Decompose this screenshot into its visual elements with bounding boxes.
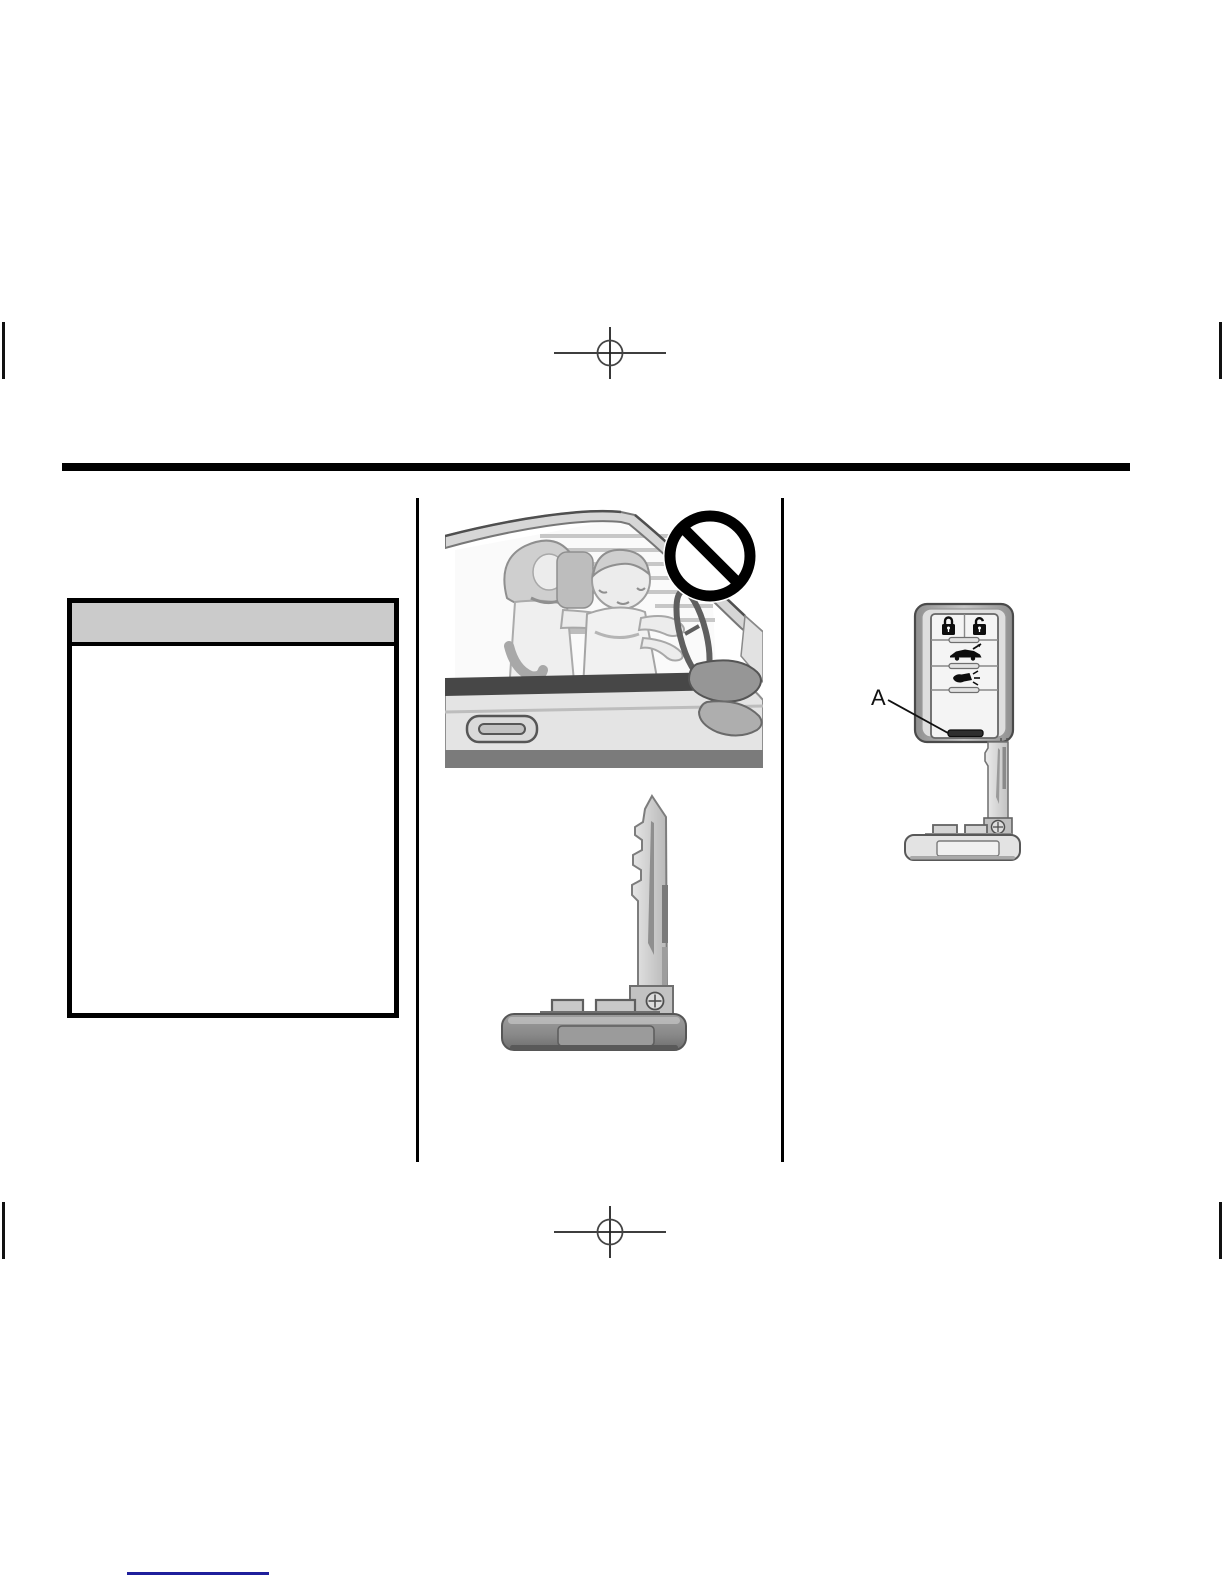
key-blade [632, 796, 668, 1005]
crop-tick-mark [1219, 1202, 1222, 1259]
warning-box [67, 598, 399, 1018]
no-symbol-icon [663, 509, 757, 603]
key-blade-small [985, 742, 1008, 823]
crop-tick-mark [2, 322, 5, 379]
transmitter-body [915, 604, 1013, 742]
footer-link-line[interactable] [127, 1572, 269, 1575]
warning-box-header [72, 603, 394, 646]
screw-icon [647, 993, 664, 1010]
key-pivot-plate [630, 986, 673, 1015]
crop-tick-mark [1219, 322, 1222, 379]
callout-a-label: A [871, 685, 886, 710]
column-divider-left [416, 498, 419, 1162]
children-in-car-warning-figure [445, 506, 763, 768]
page-header-rule [62, 463, 1130, 471]
column-divider-right [781, 498, 784, 1162]
crosshair-registration-mark [553, 1205, 667, 1259]
crop-tick-mark [2, 1202, 5, 1259]
key-blade-figure [500, 793, 692, 1059]
screw-icon [992, 821, 1005, 834]
crosshair-registration-mark [553, 326, 667, 380]
remote-transmitter-figure: A [865, 592, 1025, 865]
manual-page: A [0, 0, 1224, 1584]
key-release-slot [948, 730, 983, 737]
